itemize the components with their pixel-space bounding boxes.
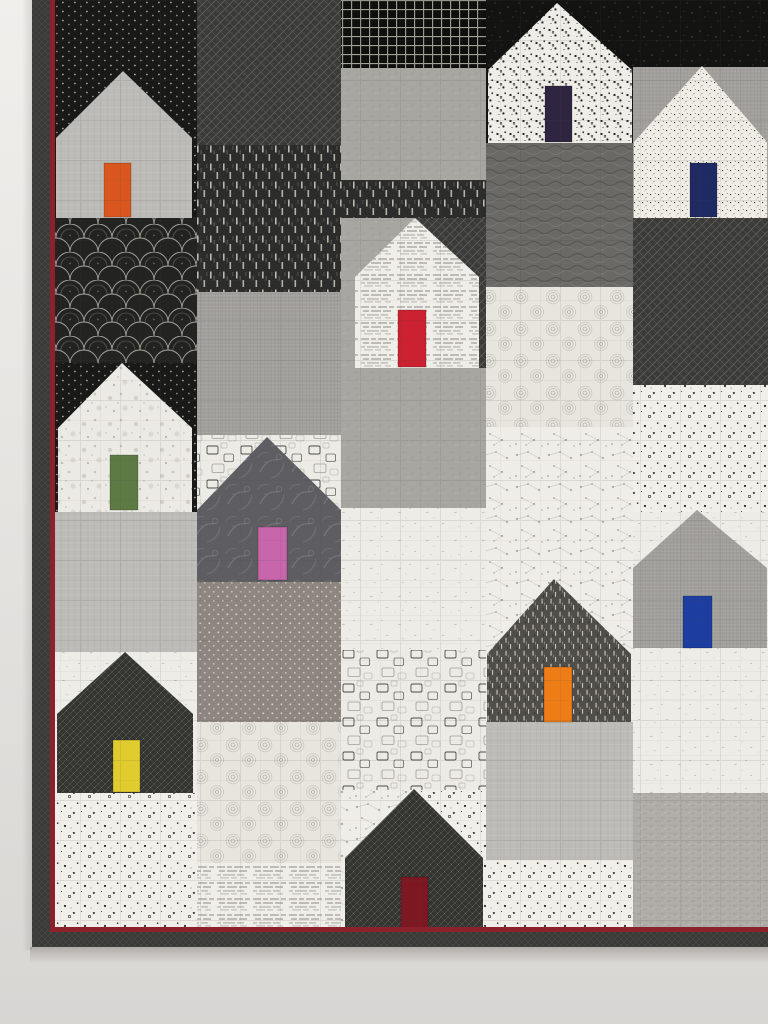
- quilt-bottom-shadow: [30, 947, 768, 963]
- quilt-scene: [0, 0, 768, 1024]
- red-piping-strip: [50, 927, 768, 932]
- quilt-photograph: [0, 0, 768, 1024]
- quilt-left-shadow: [22, 0, 32, 950]
- binding-strip: [32, 932, 768, 947]
- quilting-stitch-overlay: [55, 0, 768, 928]
- binding-strip: [32, 0, 50, 947]
- red-piping-strip: [50, 0, 55, 930]
